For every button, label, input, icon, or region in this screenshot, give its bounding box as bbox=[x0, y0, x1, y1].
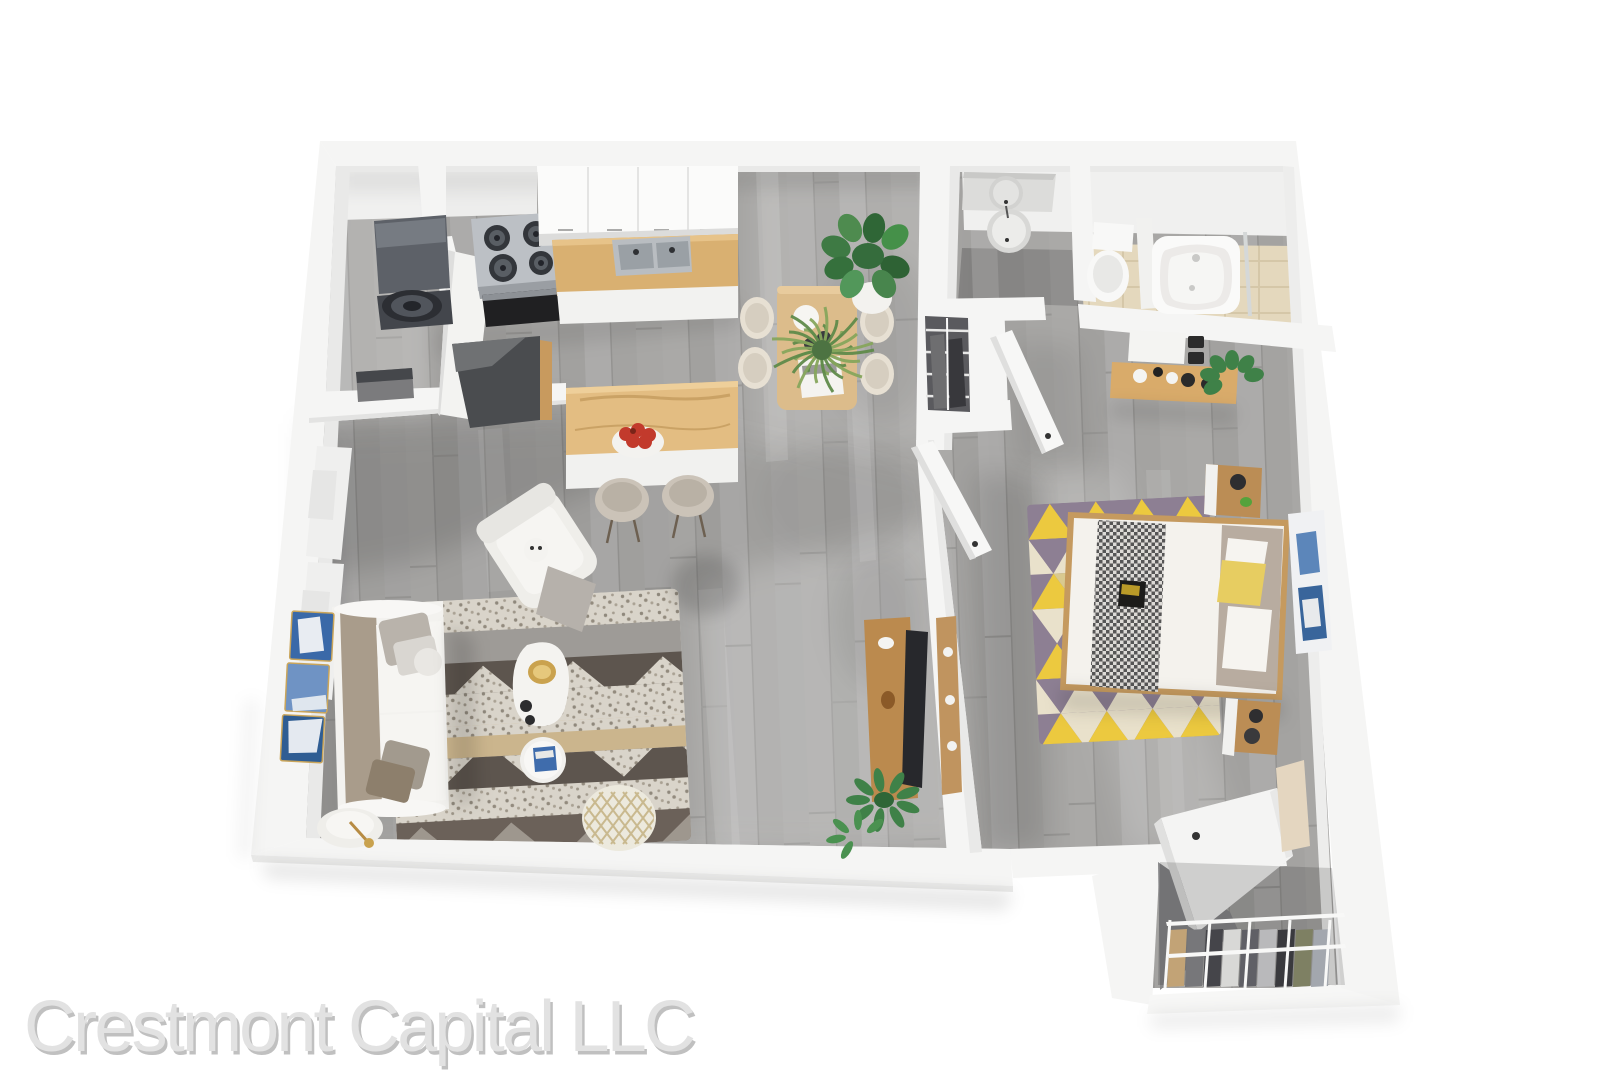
svg-text:Crestmont Capital LLC: Crestmont Capital LLC bbox=[24, 987, 696, 1067]
